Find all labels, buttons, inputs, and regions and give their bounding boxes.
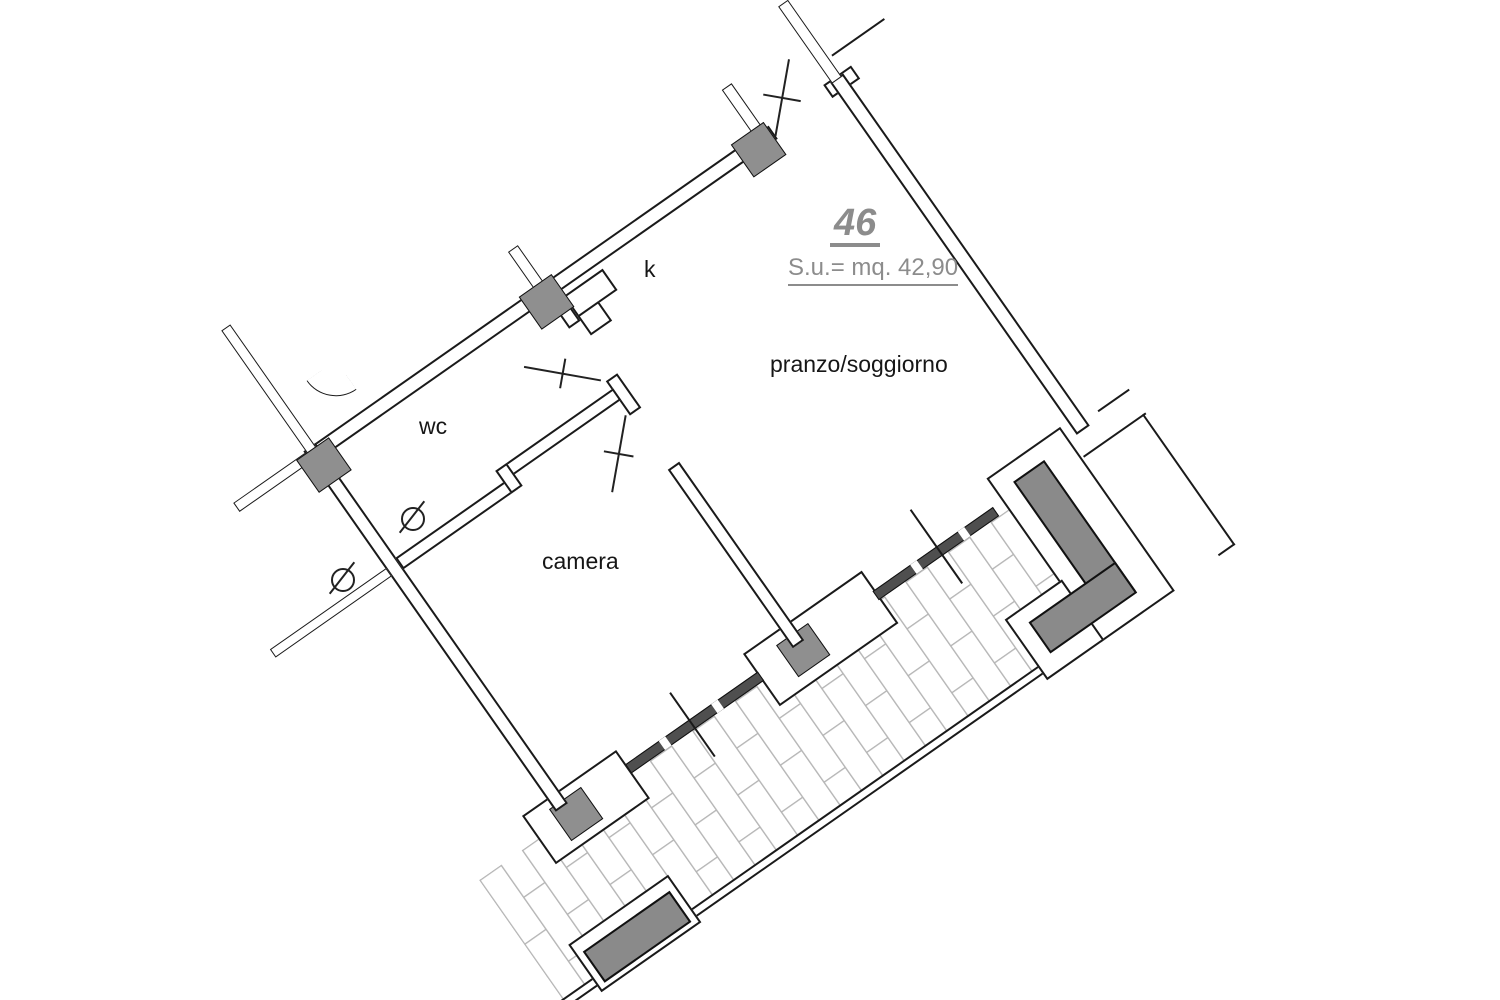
left-exterior-wall [303,443,568,812]
partition-wc-bedroom-left [395,478,518,570]
pillar-entry [731,122,787,178]
balcony-tiles [479,506,1097,1000]
living-bottom-wall-extension [1098,389,1130,412]
partition-wc-bedroom-right [495,388,621,482]
floor-plan-canvas: 46 S.u.= mq. 42,90 k wc camera pranzo/so… [0,0,1500,1000]
rotated-plan-layer [0,0,1500,1000]
left-wall-extension-up [221,324,316,453]
top-right-context-line [831,18,885,56]
neighbour-balcony-end-tick [1218,543,1236,556]
neighbour-facade-line [1083,412,1146,457]
party-wall-stub-bedroom [270,568,392,658]
partition-bedroom-living [668,462,805,649]
neighbour-door-swing-icon [306,360,356,410]
right-wall-extension-up [778,0,842,84]
neighbour-balcony-edge [1142,414,1235,546]
right-exterior-wall [830,73,1090,434]
